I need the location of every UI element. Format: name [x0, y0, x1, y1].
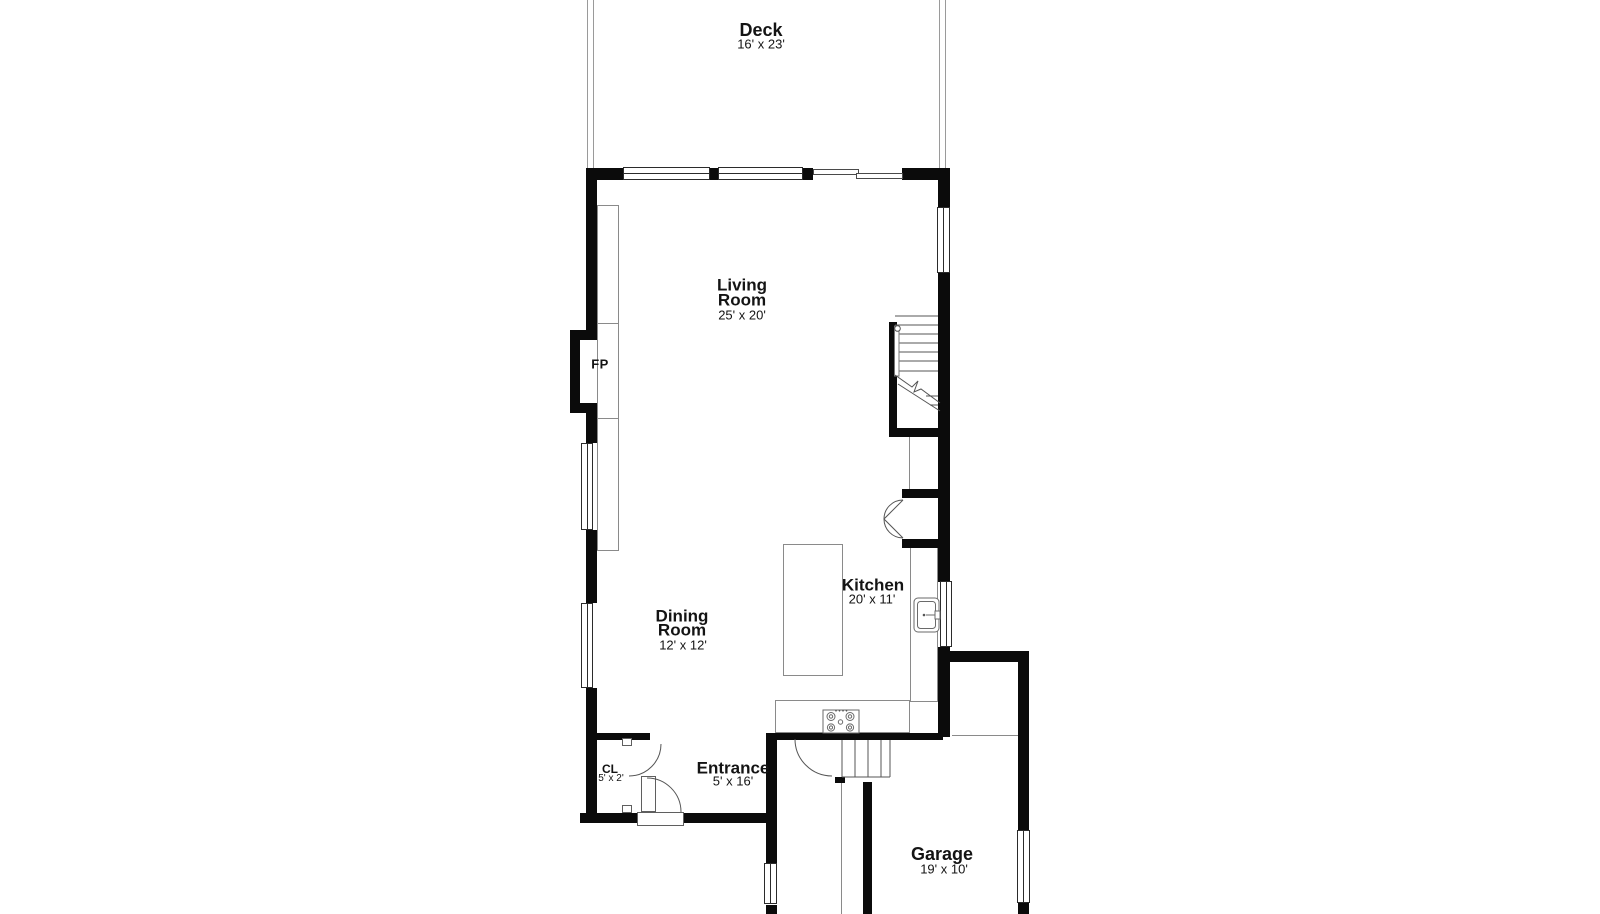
- sliding-door-panel: [813, 169, 859, 175]
- wall-pantry-north: [902, 489, 950, 498]
- hall-partition-line: [909, 437, 910, 489]
- wall-garage-west-lower: [863, 782, 872, 914]
- wall-entrance-east: [766, 733, 777, 863]
- basement-stairs: [842, 740, 890, 777]
- sliding-door-panel: [856, 173, 903, 179]
- wall-left: [586, 180, 597, 330]
- window: [940, 581, 952, 647]
- basement-door-arc: [795, 739, 832, 776]
- deck-rail-right: [939, 0, 946, 168]
- pantry-double-doors: [884, 500, 903, 538]
- built-in-shelves: [597, 205, 619, 551]
- wall-stair-west: [889, 322, 897, 437]
- garage-header-line: [952, 735, 1018, 736]
- room-dims-deck: 16' x 23': [737, 38, 785, 51]
- room-dims-entrance: 5' x 16': [713, 775, 753, 788]
- window: [1017, 830, 1030, 903]
- window: [718, 167, 803, 180]
- built-in-divider: [597, 418, 619, 419]
- closet-door-jamb: [622, 805, 632, 813]
- window: [764, 863, 777, 904]
- plan-graphics: [0, 0, 1600, 914]
- wall-bottom: [684, 813, 777, 823]
- window: [581, 443, 593, 530]
- wall-top: [586, 168, 623, 180]
- main-stairs: [895, 316, 941, 411]
- room-dims-kitchen: 20' x 11': [849, 593, 896, 606]
- basement-stair-stub: [835, 777, 845, 783]
- wall-right: [938, 548, 950, 582]
- room-label-garage: Garage: [911, 845, 973, 863]
- room-label-living-line2: Room: [718, 292, 766, 309]
- kitchen-counter-south: [775, 700, 910, 733]
- room-label-dining-line2: Room: [658, 622, 706, 639]
- built-in-divider: [597, 323, 619, 324]
- wall-left: [586, 413, 597, 443]
- wall-left: [586, 688, 597, 813]
- front-door-leaf: [641, 776, 656, 812]
- wall-garage-east-stub: [1018, 903, 1029, 914]
- kitchen-counter-east: [910, 546, 938, 702]
- wall-top-post: [803, 168, 813, 180]
- closet-door-jamb: [622, 738, 632, 746]
- wall-garage-east: [1018, 651, 1029, 830]
- wall-top-mullion: [710, 168, 718, 180]
- wall-entrance-east-stub: [766, 905, 777, 914]
- wall-pantry-south: [902, 539, 950, 548]
- room-label-fireplace: FP: [591, 358, 609, 371]
- room-dims-dining: 12' x 12': [659, 639, 707, 652]
- window: [937, 207, 950, 273]
- wall-garage-north: [941, 651, 1029, 662]
- kitchen-island: [783, 544, 843, 676]
- wall-right: [938, 273, 950, 428]
- floor-plan: Deck 16' x 23' Living Room 25' x 20' FP …: [0, 0, 1600, 914]
- wall-left: [586, 530, 597, 603]
- wall-right: [938, 437, 950, 489]
- front-door-threshold: [637, 812, 684, 826]
- fireplace-box: [580, 340, 597, 403]
- wall-bottom: [580, 813, 638, 823]
- wall-kitchen-south: [767, 733, 943, 740]
- wall-right: [938, 498, 950, 539]
- closet-door-arc: [629, 744, 661, 776]
- wall-top-right-corner: [902, 168, 950, 180]
- deck-rail-left: [587, 0, 594, 168]
- basement-stair-rail: [841, 783, 842, 914]
- room-dims-living: 25' x 20': [718, 309, 766, 322]
- wall-stair-south: [889, 428, 950, 437]
- window: [581, 603, 593, 688]
- window: [623, 167, 710, 180]
- wall-right: [938, 180, 950, 207]
- wall-garage-west-upper: [938, 652, 950, 737]
- room-dims-garage: 19' x 10': [920, 863, 968, 876]
- room-dims-closet: 5' x 2': [598, 774, 624, 784]
